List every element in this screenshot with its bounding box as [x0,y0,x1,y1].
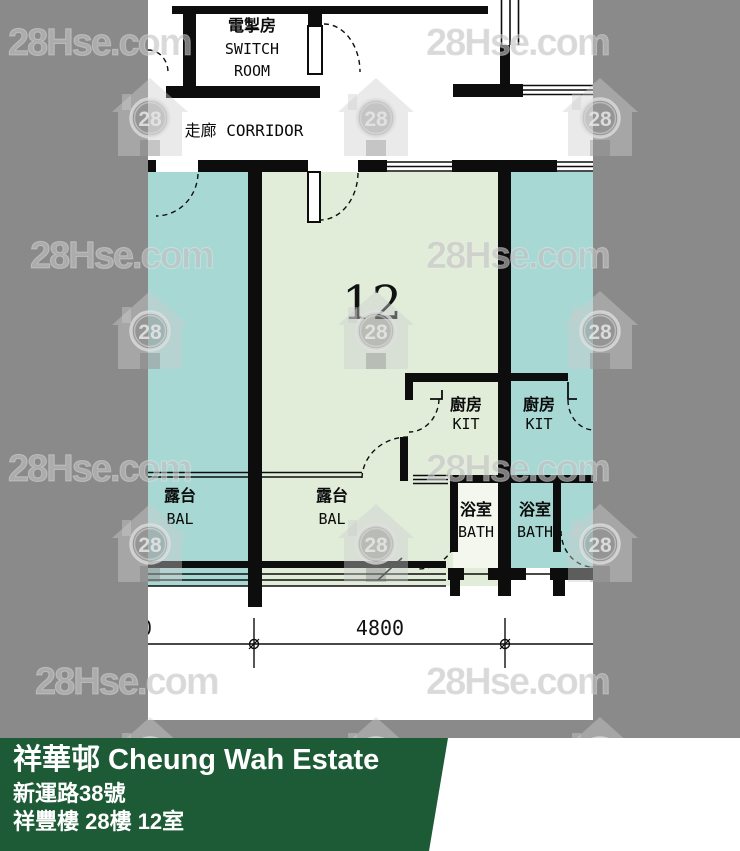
floor-plan: 電掣房 SWITCH ROOM 走廊 CORRIDOR 12 廚房 KIT 廚房… [148,0,593,720]
unit-number: 12 [342,276,402,331]
screenshot-stage: 電掣房 SWITCH ROOM 走廊 CORRIDOR 12 廚房 KIT 廚房… [0,0,740,851]
bath-self-en: BATH [458,524,494,541]
switch-room-label-en1: SWITCH [225,41,279,58]
balcony-self-en: BAL [318,511,345,528]
dimension-value: 4800 [356,616,404,640]
bottom-strip: 祥華邨 Cheung Wah Estate 新運路38號 祥豐樓 28樓 12室… [0,738,740,851]
balcony-left-cn: 露台 [164,487,196,504]
balcony-left-en: BAL [166,511,193,528]
switch-room-label-cn: 電掣房 [228,17,276,34]
kitchen-self-cn: 廚房 [450,396,482,413]
banner-text: 祥華邨 Cheung Wah Estate 新運路38號 祥豐樓 28樓 12室 [13,740,379,836]
dimension-clipped-digit: 0 [148,616,152,640]
floor-plan-drawing [148,0,593,720]
kitchen-self-en: KIT [452,416,479,433]
estate-address: 新運路38號 [13,780,379,808]
bath-neighbor-en: BATH [517,524,553,541]
corridor-label: 走廊 CORRIDOR [185,122,304,139]
door-leaves [308,26,322,222]
bath-self-cn: 浴室 [460,501,492,518]
estate-title: 祥華邨 Cheung Wah Estate [13,740,379,780]
kitchen-neighbor-en: KIT [525,416,552,433]
bath-neighbor-cn: 浴室 [519,501,551,518]
balcony-self-cn: 露台 [316,487,348,504]
switch-room-label-en2: ROOM [234,63,270,80]
estate-flat: 祥豐樓 28樓 12室 [13,808,379,836]
kitchen-neighbor-cn: 廚房 [523,396,555,413]
